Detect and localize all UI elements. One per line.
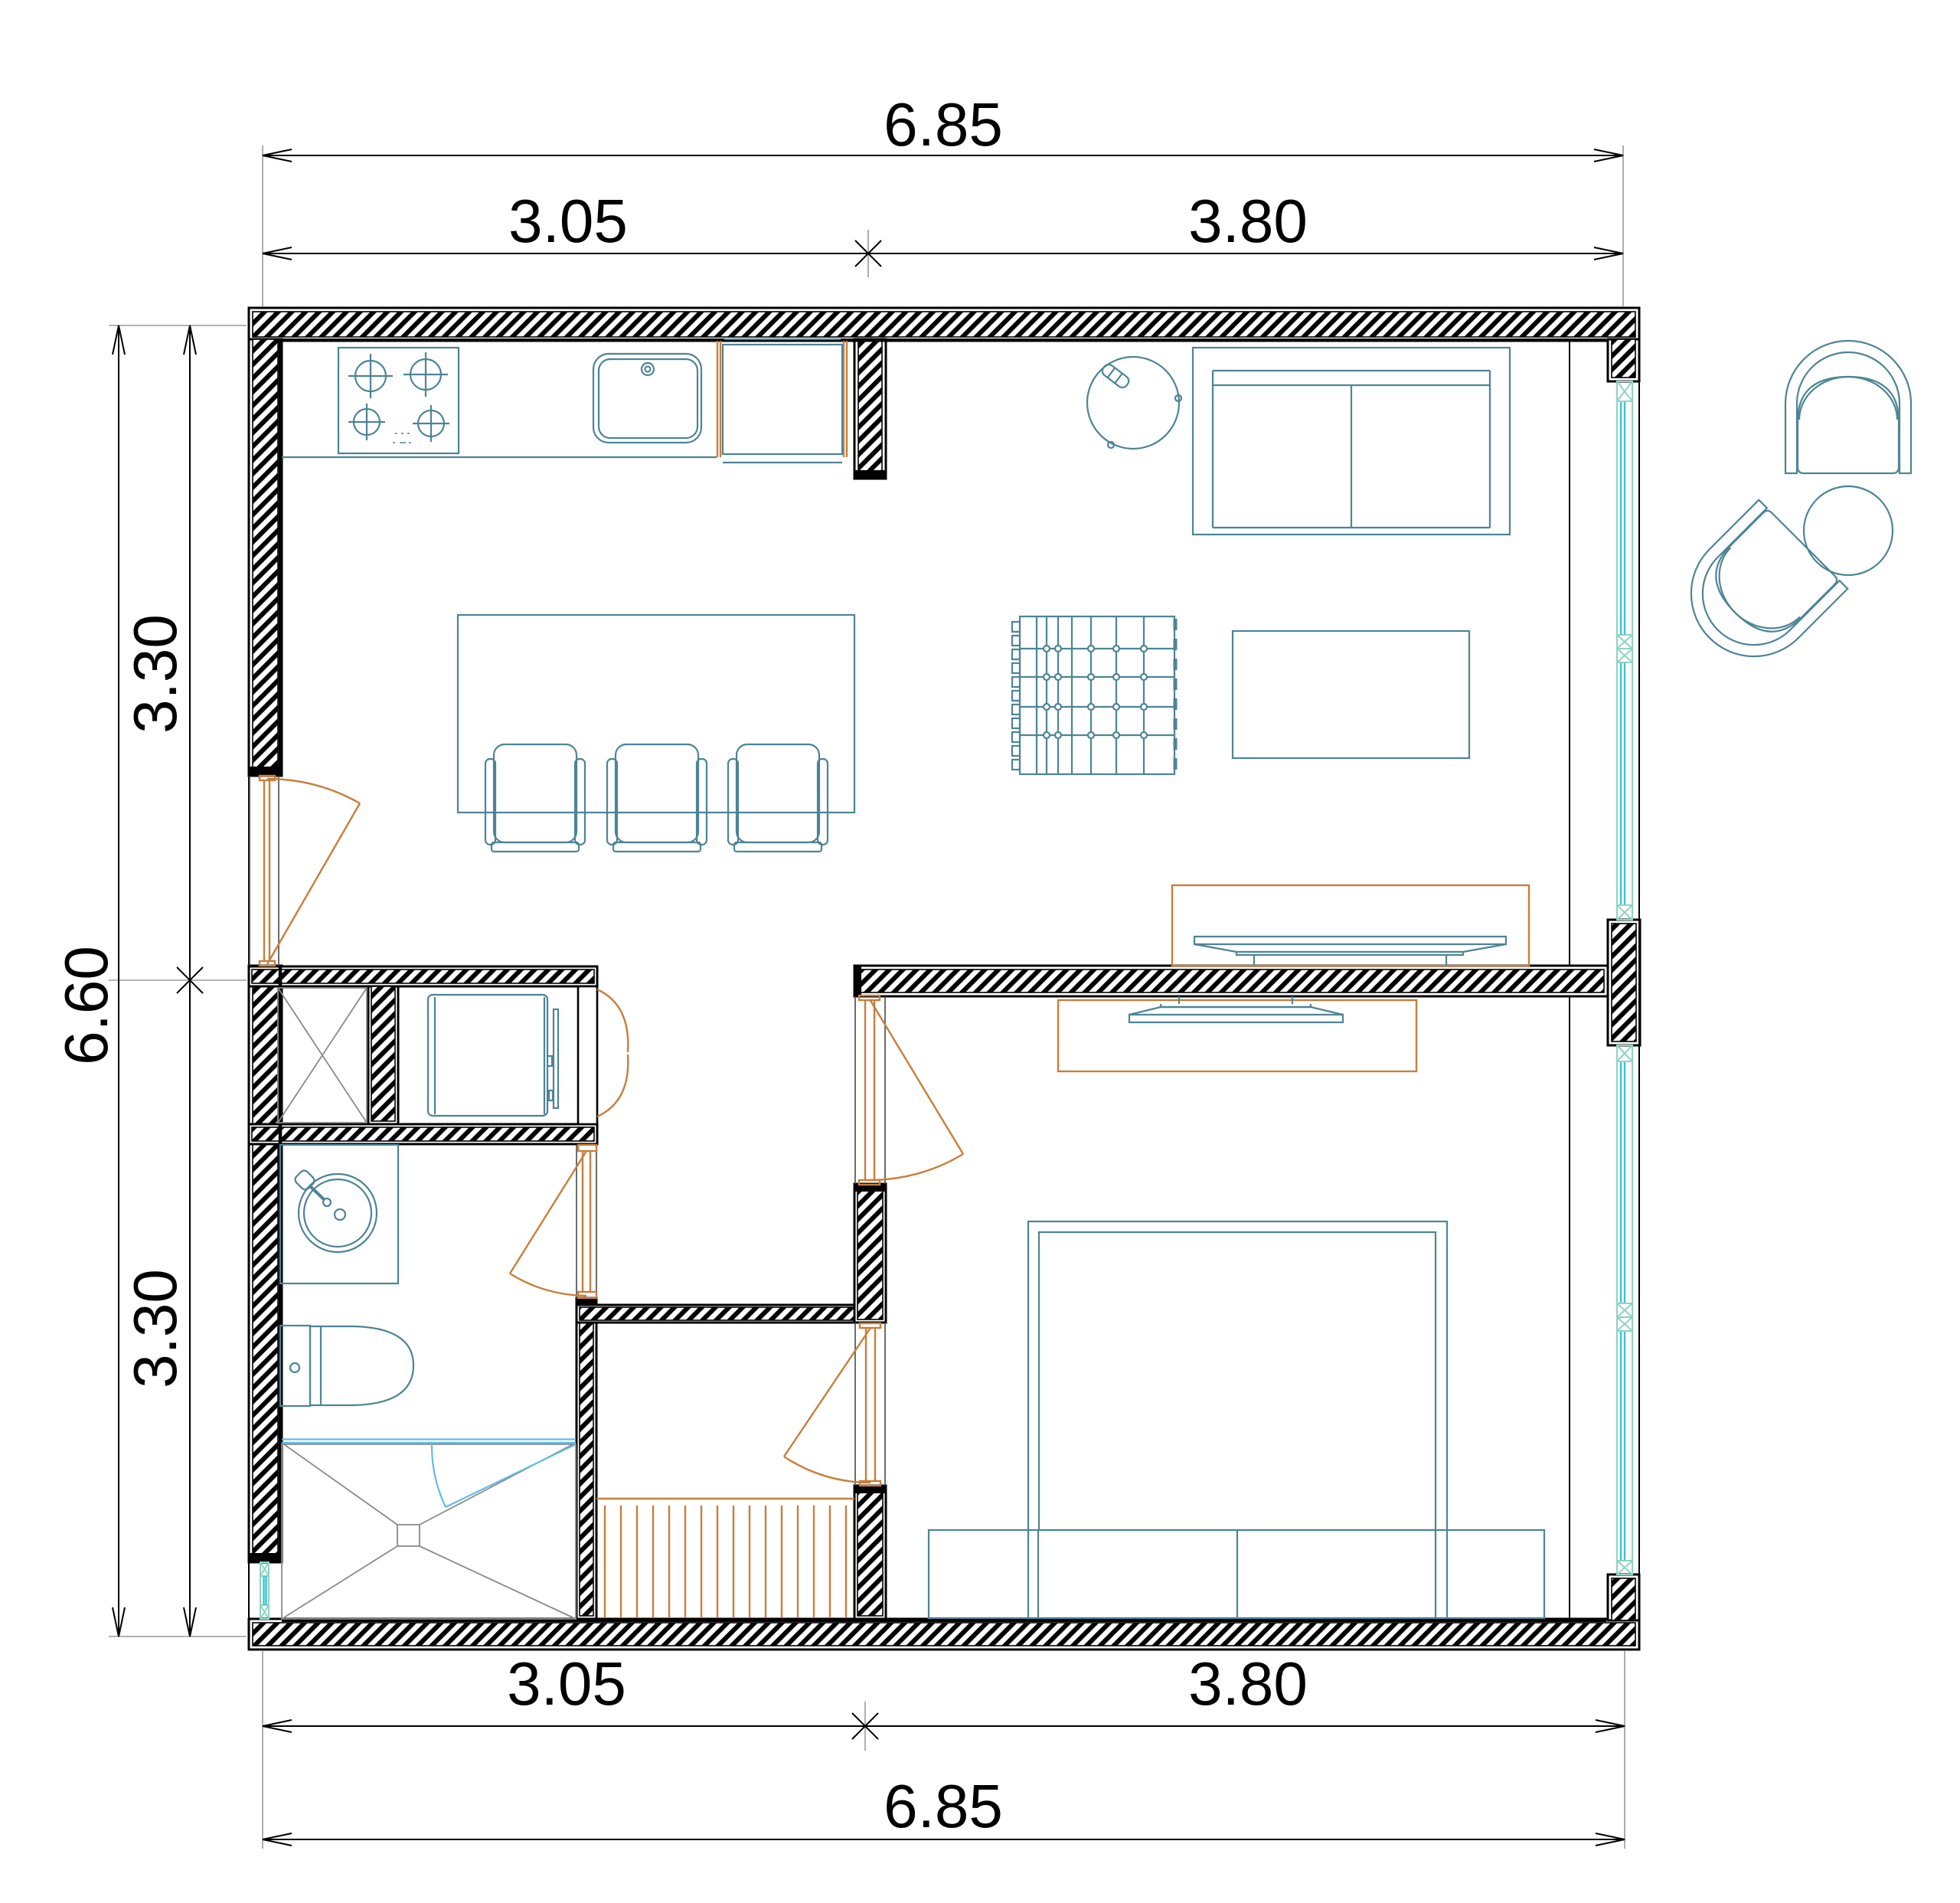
svg-text:3.80: 3.80 [1188, 187, 1308, 255]
svg-text:6.60: 6.60 [52, 946, 120, 1065]
svg-text:3.30: 3.30 [121, 1269, 189, 1388]
svg-text:3.05: 3.05 [508, 187, 628, 255]
svg-text:3.30: 3.30 [121, 614, 189, 734]
svg-text:3.80: 3.80 [1188, 1650, 1308, 1718]
svg-text:6.85: 6.85 [884, 1772, 1003, 1840]
svg-text:6.85: 6.85 [884, 90, 1003, 159]
svg-text:3.05: 3.05 [507, 1650, 626, 1718]
